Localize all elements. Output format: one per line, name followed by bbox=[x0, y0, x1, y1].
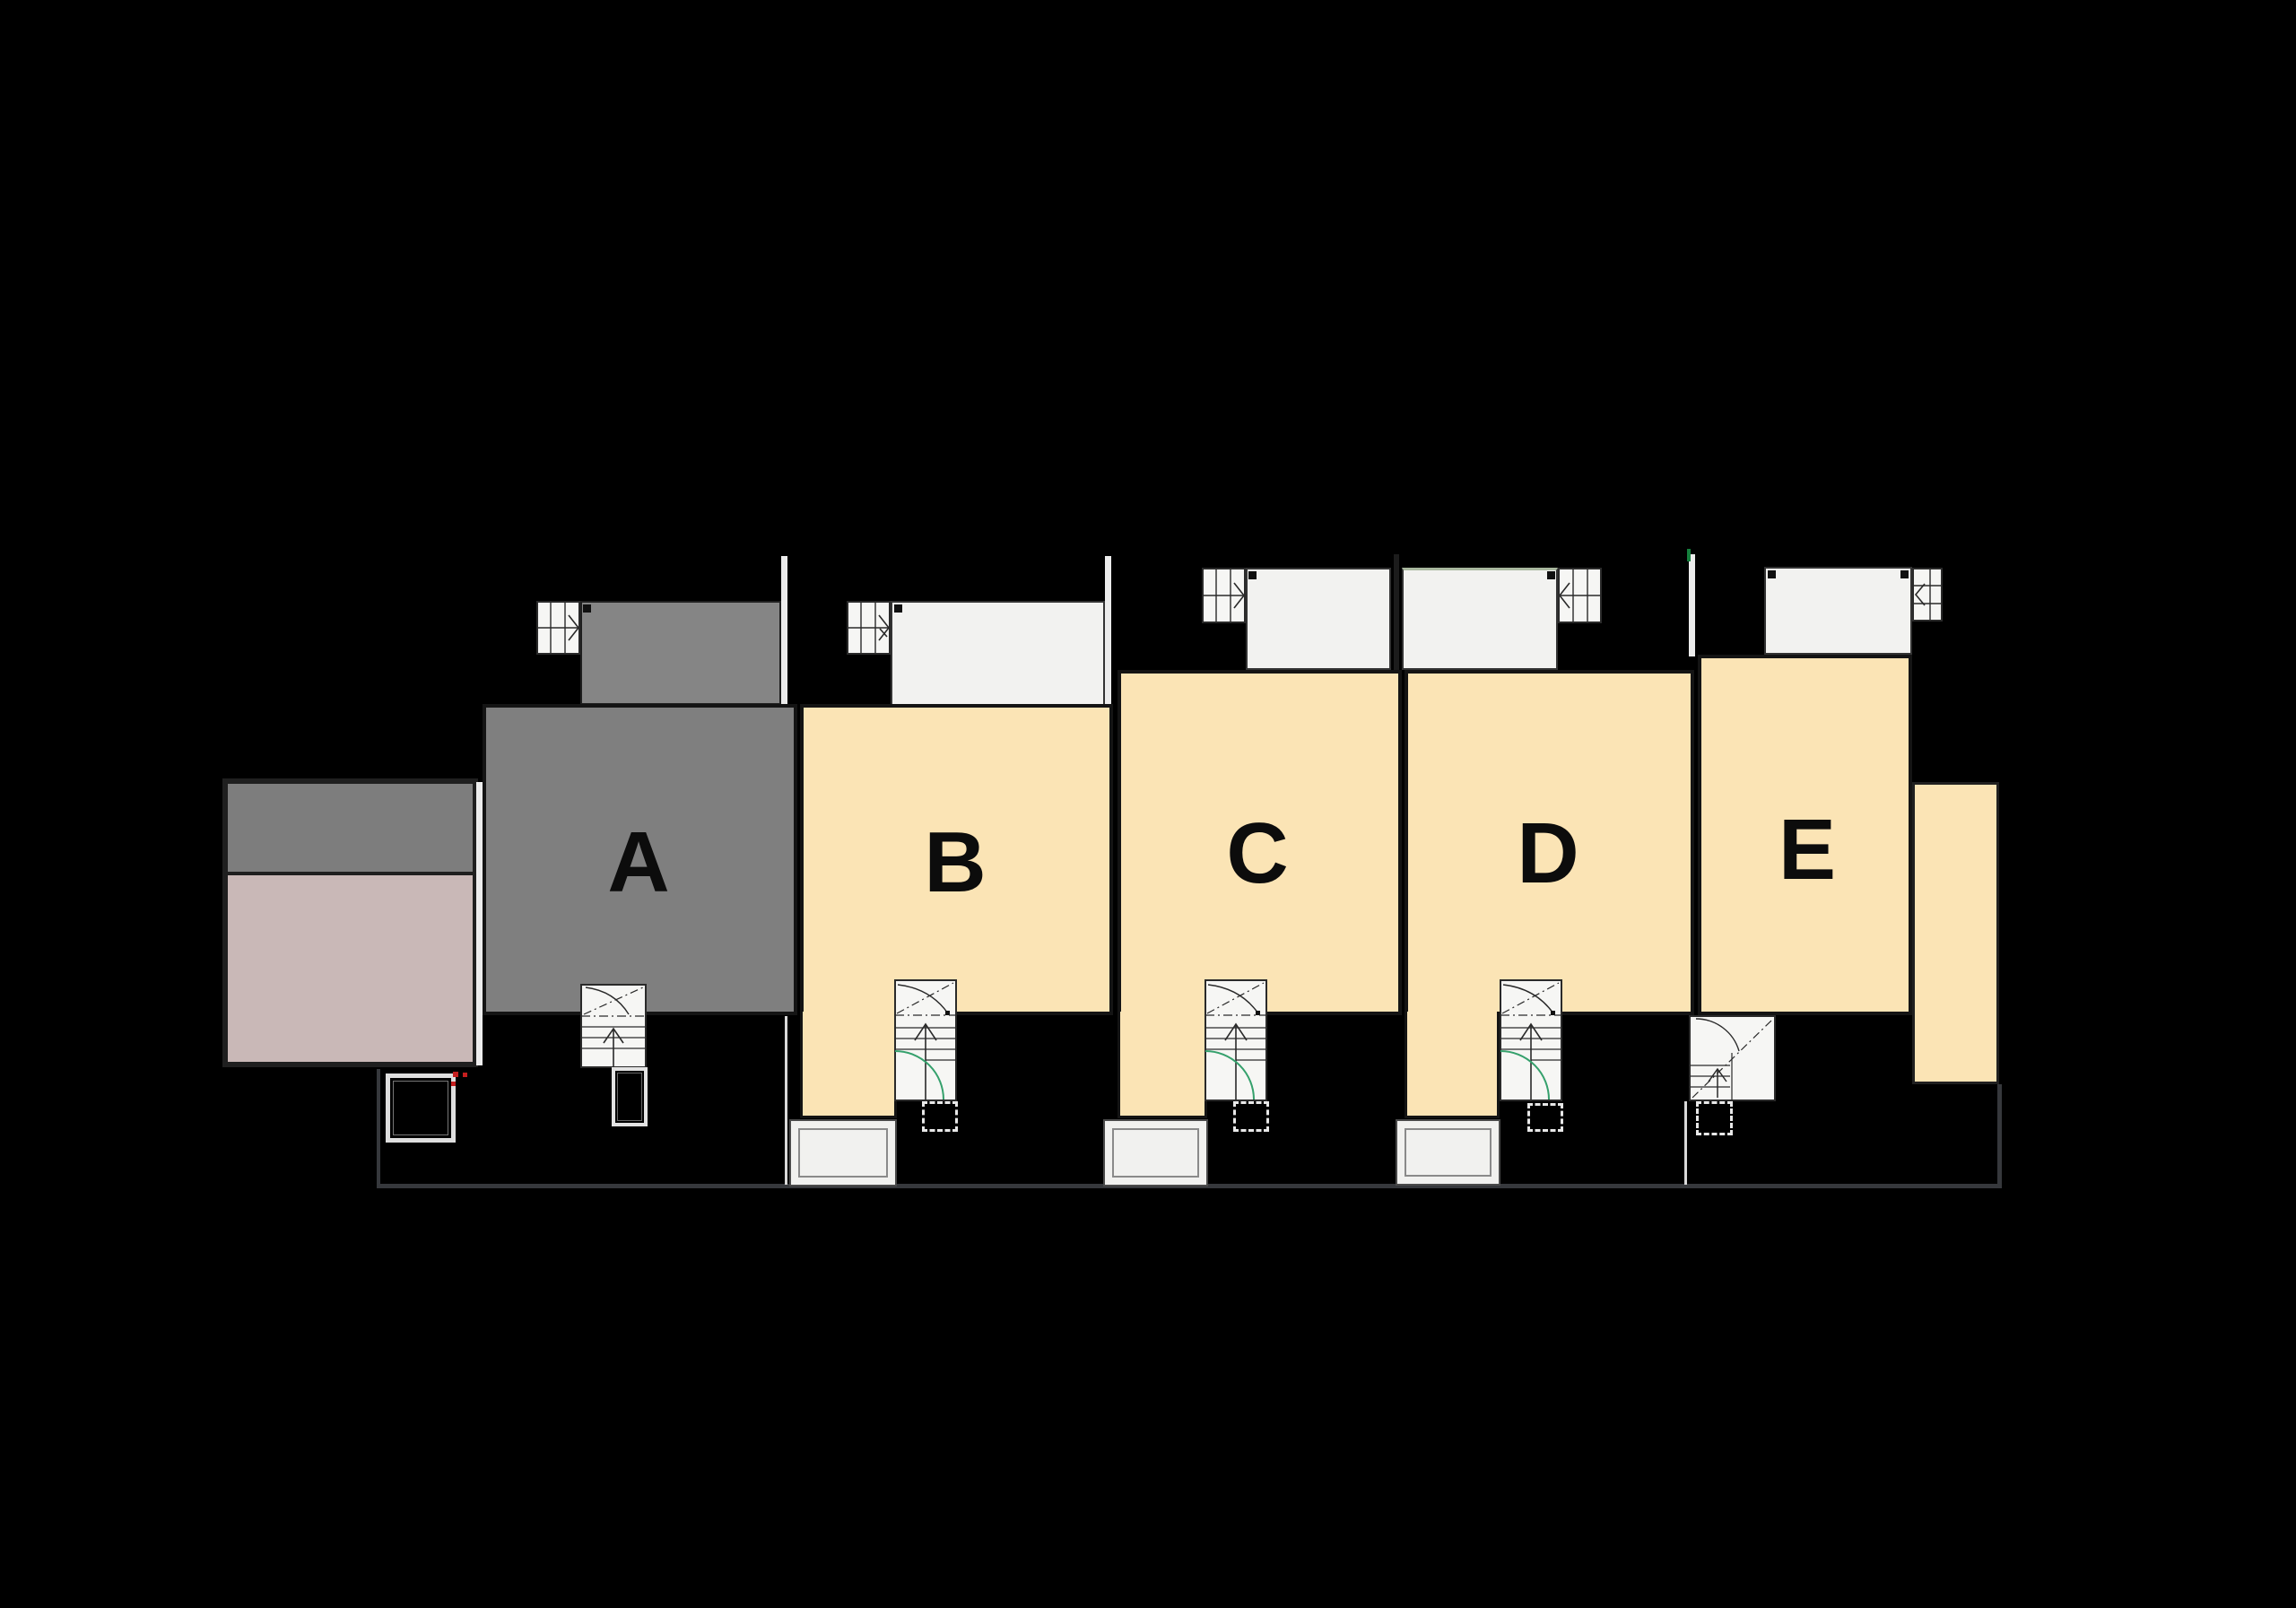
unit-c-label: C bbox=[1226, 804, 1290, 903]
balcony-a-corner-tick bbox=[583, 604, 591, 613]
annex-building bbox=[222, 778, 478, 1067]
party-wall-strip-a-b bbox=[781, 556, 787, 705]
bottom-stair-unit-b bbox=[894, 979, 957, 1101]
porch-inner-line bbox=[1405, 1128, 1492, 1177]
unit-b-entry-leg bbox=[800, 1012, 897, 1118]
unit-e-extension bbox=[1912, 782, 1999, 1084]
top-stair-unit-c bbox=[1202, 568, 1246, 623]
entry-porch-unit-b bbox=[789, 1119, 897, 1186]
party-wall-c-d bbox=[1394, 554, 1399, 671]
parking-square-inner-line bbox=[393, 1081, 448, 1135]
survey-marker-red-3 bbox=[463, 1073, 467, 1077]
balcony-unit-d bbox=[1402, 568, 1558, 670]
stair-d-lower-landing bbox=[1527, 1103, 1563, 1132]
plot-divider-d-e bbox=[1684, 1101, 1687, 1185]
entry-porch-unit-c bbox=[1103, 1119, 1208, 1186]
unit-d-label: D bbox=[1517, 804, 1580, 903]
site-boundary-right bbox=[1997, 1084, 2002, 1188]
balcony-d-corner-tick bbox=[1547, 571, 1555, 579]
balcony-b-corner-tick bbox=[894, 604, 902, 613]
porch-inner-line bbox=[1112, 1128, 1199, 1178]
annex-wall-strip bbox=[476, 782, 483, 1065]
party-wall-strip-b-c bbox=[1105, 556, 1111, 705]
site-plan-canvas: A B C D E bbox=[0, 0, 2296, 1608]
top-stair-unit-a bbox=[536, 601, 580, 655]
unit-a-label: A bbox=[607, 813, 671, 912]
bottom-stair-unit-e bbox=[1689, 1015, 1776, 1101]
annex-lower-area bbox=[228, 875, 473, 1062]
unit-d-entry-leg bbox=[1405, 1012, 1500, 1118]
balcony-e-corner-tick-left bbox=[1768, 570, 1776, 578]
balcony-unit-a bbox=[580, 601, 781, 705]
balcony-unit-b bbox=[891, 601, 1105, 706]
survey-marker-green bbox=[1687, 549, 1691, 561]
top-stair-unit-d bbox=[1558, 568, 1602, 623]
unit-c-entry-leg bbox=[1118, 1012, 1207, 1118]
survey-marker-red-1 bbox=[453, 1072, 458, 1077]
porch-inner-line bbox=[798, 1128, 888, 1178]
stair-e-lower-landing bbox=[1696, 1101, 1733, 1135]
stair-c-lower-landing bbox=[1233, 1101, 1269, 1132]
balcony-c-corner-tick bbox=[1248, 571, 1257, 579]
annex-upper-band bbox=[228, 784, 473, 875]
balcony-unit-c bbox=[1246, 568, 1391, 670]
unit-e-label: E bbox=[1779, 801, 1838, 900]
survey-marker-red-2 bbox=[451, 1082, 456, 1086]
parking-square bbox=[386, 1073, 456, 1143]
party-wall-strip-d-e bbox=[1689, 554, 1695, 656]
bottom-stair-unit-c bbox=[1205, 979, 1267, 1101]
balcony-e-corner-tick-right bbox=[1900, 570, 1909, 578]
site-boundary-left bbox=[377, 1069, 380, 1188]
bottom-stair-unit-a bbox=[580, 984, 647, 1068]
stair-b-lower-landing bbox=[922, 1101, 958, 1132]
stair-a-lower-landing bbox=[612, 1067, 648, 1126]
top-stair-unit-b bbox=[847, 601, 891, 655]
unit-b-label: B bbox=[924, 813, 987, 912]
entry-porch-unit-d bbox=[1396, 1119, 1500, 1186]
plot-divider-a-b bbox=[785, 1016, 787, 1185]
bottom-stair-unit-d bbox=[1500, 979, 1562, 1101]
top-stair-unit-e bbox=[1912, 568, 1943, 621]
balcony-unit-e bbox=[1764, 567, 1912, 655]
